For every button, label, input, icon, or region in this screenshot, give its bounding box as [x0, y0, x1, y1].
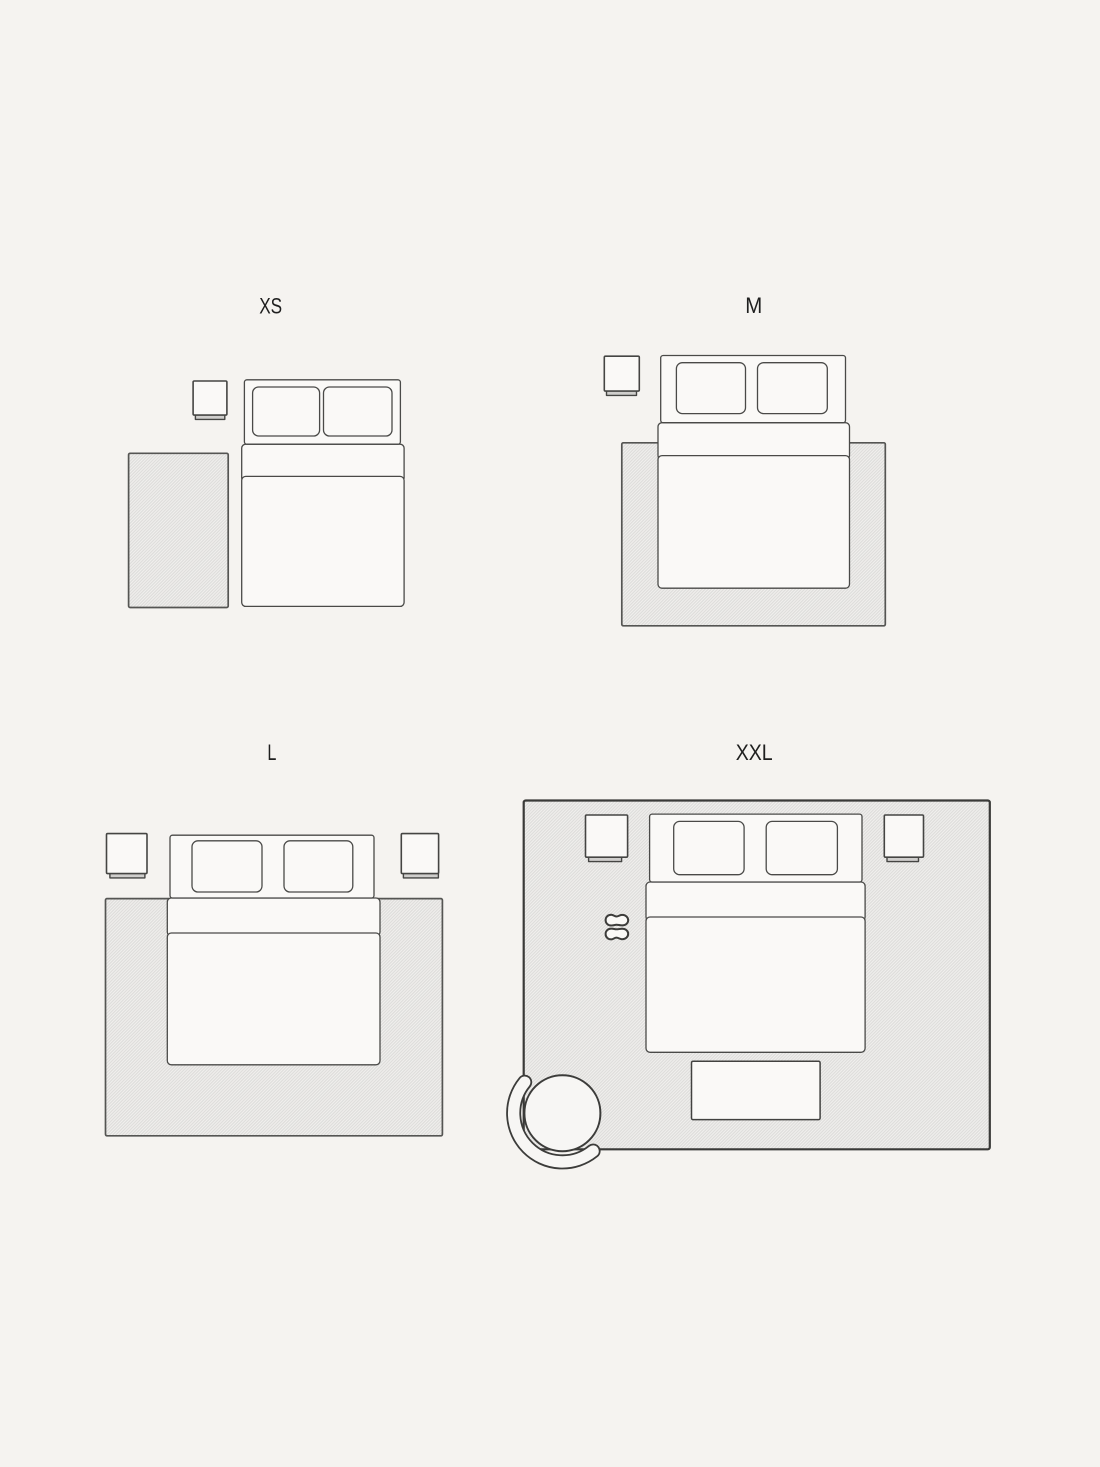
svg-text:XXL: XXL — [736, 740, 773, 765]
svg-text:XS: XS — [259, 294, 282, 319]
svg-text:L: L — [267, 740, 276, 765]
svg-text:M: M — [745, 293, 762, 318]
